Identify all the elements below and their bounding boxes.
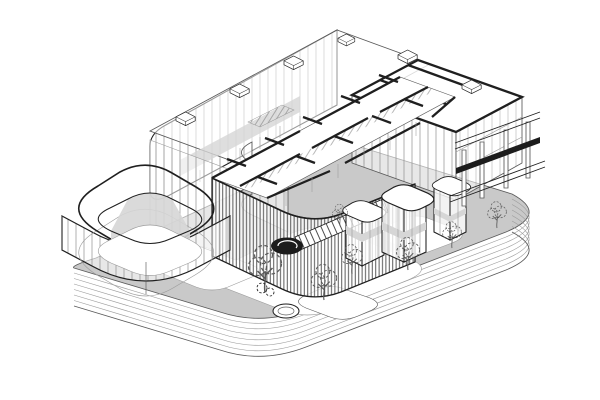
spiral-stair-landing <box>271 238 303 255</box>
architectural-axonometric-svg: Axonometric architectural drawing <box>0 0 600 400</box>
pond <box>273 304 299 318</box>
axonometric-drawing-canvas: Axonometric architectural drawing <box>0 0 600 400</box>
